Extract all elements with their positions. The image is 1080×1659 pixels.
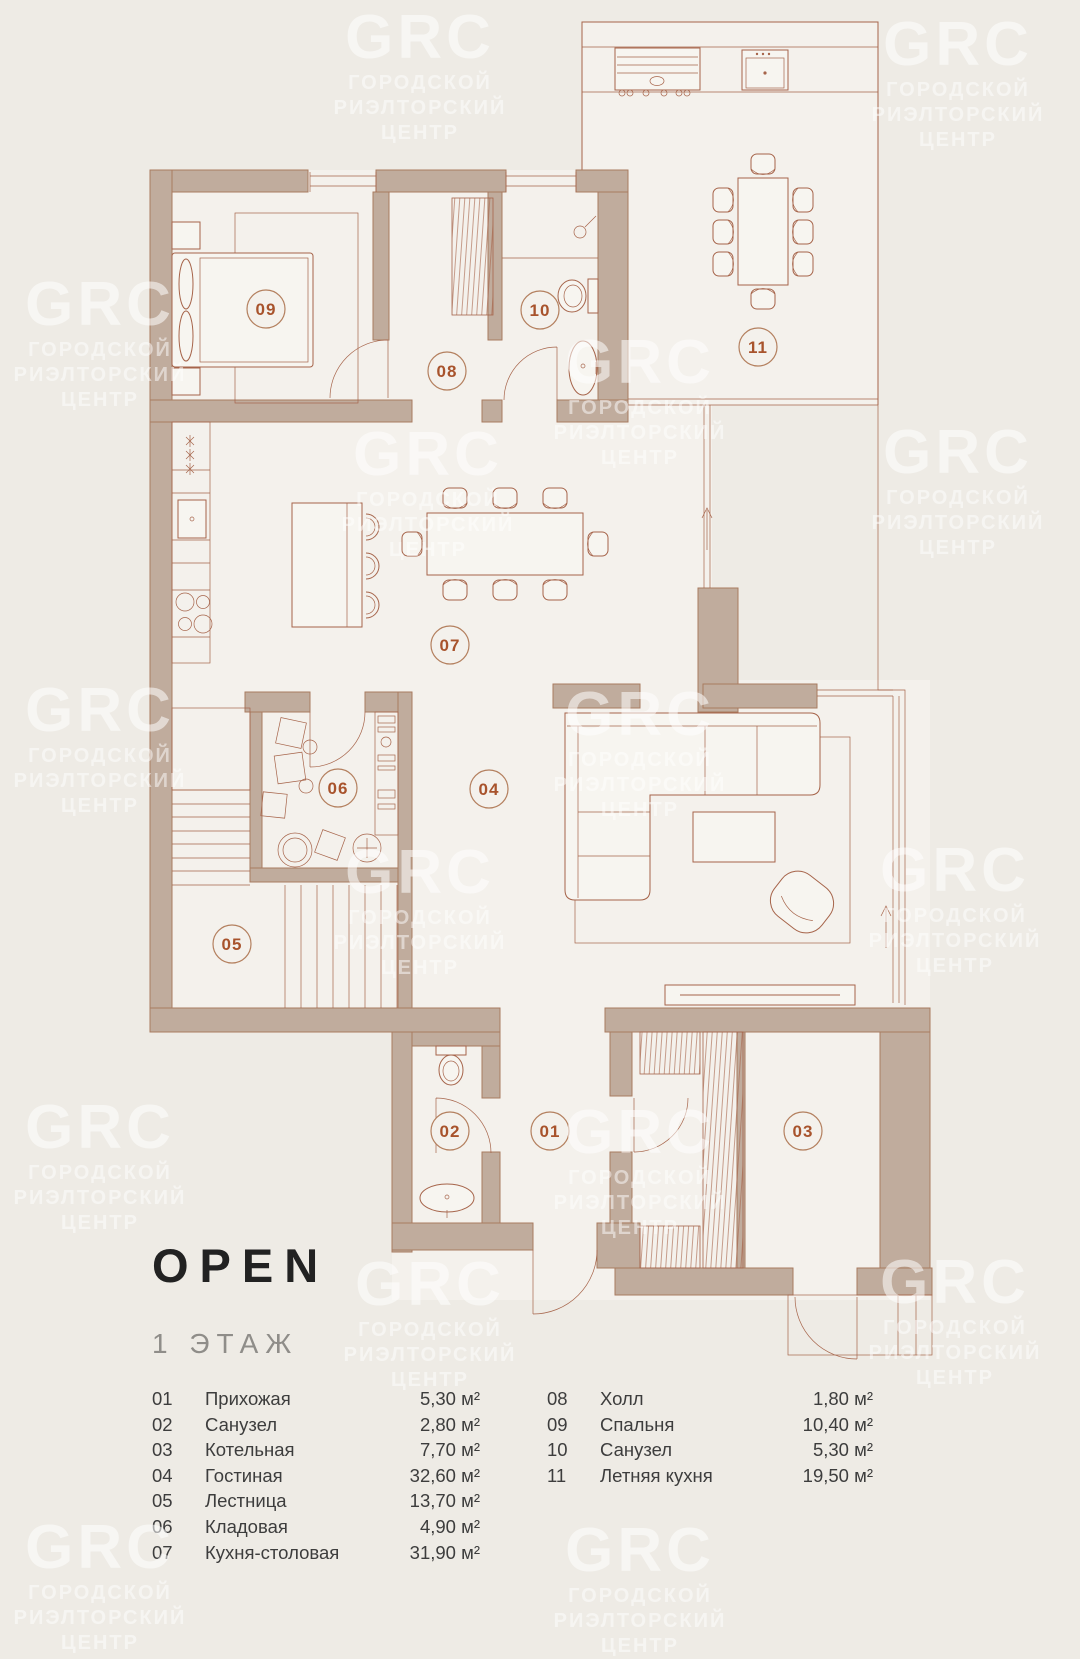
- grill-icon: [615, 48, 700, 96]
- kitchen-sink-icon: [178, 500, 206, 538]
- svg-text:03: 03: [793, 1122, 814, 1141]
- room-area: 19,50 м²: [803, 1465, 873, 1487]
- room-number: 04: [152, 1465, 205, 1487]
- svg-text:11: 11: [748, 338, 768, 357]
- legend-row: 04 Гостиная 32,60 м²: [152, 1465, 480, 1491]
- floor-plates: [150, 22, 930, 1300]
- room-name: Гостиная: [205, 1465, 410, 1487]
- room-number: 07: [152, 1542, 205, 1564]
- room-name: Санузел: [205, 1414, 420, 1436]
- room-area: 4,90 м²: [420, 1516, 480, 1538]
- room-number: 05: [152, 1490, 205, 1512]
- svg-text:04: 04: [479, 780, 500, 799]
- room-number: 02: [152, 1414, 205, 1436]
- room-area: 32,60 м²: [410, 1465, 480, 1487]
- room-label-02: 02: [431, 1112, 469, 1150]
- room-number: 10: [547, 1439, 600, 1461]
- room-name: Холл: [600, 1388, 813, 1410]
- watermark-line: ГОРОДСКОЙ: [525, 1584, 755, 1609]
- legend-row: 10 Санузел 5,30 м²: [547, 1439, 873, 1465]
- room-label-01: 01: [531, 1112, 569, 1150]
- floor-subtitle: 1 ЭТАЖ: [152, 1328, 298, 1360]
- svg-text:09: 09: [256, 300, 277, 319]
- toilet-icon: [558, 279, 598, 313]
- watermark-line: ГОРОДСКОЙ: [0, 1581, 215, 1606]
- watermark-line: ЦЕНТР: [0, 1631, 215, 1656]
- legend-row: 02 Санузел 2,80 м²: [152, 1414, 480, 1440]
- nightstand: [172, 368, 200, 395]
- room-name: Спальня: [600, 1414, 803, 1436]
- nightstand: [172, 222, 200, 249]
- legend-row: 05 Лестница 13,70 м²: [152, 1490, 480, 1516]
- outdoor-sink-icon: [742, 50, 788, 90]
- room-label-08: 08: [428, 352, 466, 390]
- room-number: 03: [152, 1439, 205, 1461]
- svg-text:08: 08: [437, 362, 458, 381]
- svg-text:10: 10: [530, 301, 551, 320]
- room-area: 1,80 м²: [813, 1388, 873, 1410]
- legend-row: 03 Котельная 7,70 м²: [152, 1439, 480, 1465]
- svg-text:07: 07: [440, 636, 461, 655]
- room-label-03: 03: [784, 1112, 822, 1150]
- wardrobe: [452, 198, 493, 315]
- room-number: 09: [547, 1414, 600, 1436]
- coffee-table: [693, 812, 775, 862]
- watermark-line: РИЭЛТОРСКИЙ: [0, 1606, 215, 1631]
- room-label-06: 06: [319, 769, 357, 807]
- room-name: Кухня-столовая: [205, 1542, 410, 1564]
- room-name: Летняя кухня: [600, 1465, 803, 1487]
- room-label-05: 05: [213, 925, 251, 963]
- room-name: Лестница: [205, 1490, 410, 1512]
- room-name: Санузел: [600, 1439, 813, 1461]
- legend-right: 08 Холл 1,80 м² 09 Спальня 10,40 м² 10 С…: [547, 1388, 873, 1490]
- room-number: 06: [152, 1516, 205, 1538]
- bed: [172, 253, 313, 367]
- room-label-09: 09: [247, 290, 285, 328]
- room-area: 7,70 м²: [420, 1439, 480, 1461]
- legend-row: 07 Кухня-столовая 31,90 м²: [152, 1542, 480, 1568]
- legend-row: 11 Летняя кухня 19,50 м²: [547, 1465, 873, 1491]
- tv-console: [665, 985, 855, 1005]
- room-label-10: 10: [521, 291, 559, 329]
- svg-text:01: 01: [540, 1122, 561, 1141]
- legend-row: 09 Спальня 10,40 м²: [547, 1414, 873, 1440]
- svg-text:02: 02: [440, 1122, 461, 1141]
- watermark-line: РИЭЛТОРСКИЙ: [525, 1609, 755, 1634]
- legend-row: 06 Кладовая 4,90 м²: [152, 1516, 480, 1542]
- room-area: 5,30 м²: [420, 1388, 480, 1410]
- room-floor-05-06: [150, 692, 412, 1032]
- legend-left: 01 Прихожая 5,30 м² 02 Санузел 2,80 м² 0…: [152, 1388, 480, 1567]
- page-title: OPEN: [152, 1238, 329, 1293]
- room-name: Прихожая: [205, 1388, 420, 1410]
- room-name: Котельная: [205, 1439, 420, 1461]
- room-number: 11: [547, 1465, 600, 1487]
- room-number: 08: [547, 1388, 600, 1410]
- room-number: 01: [152, 1388, 205, 1410]
- legend-row: 01 Прихожая 5,30 м²: [152, 1388, 480, 1414]
- legend-row: 08 Холл 1,80 м²: [547, 1388, 873, 1414]
- room-area: 2,80 м²: [420, 1414, 480, 1436]
- svg-text:05: 05: [222, 935, 243, 954]
- room-area: 13,70 м²: [410, 1490, 480, 1512]
- floor-plan-page: { "title": "OPEN", "floor": "1 ЭТАЖ", "w…: [0, 0, 1080, 1584]
- sink-icon: [569, 341, 597, 395]
- room-area: 31,90 м²: [410, 1542, 480, 1564]
- room-label-07: 07: [431, 626, 469, 664]
- door-boiler: [795, 1297, 857, 1359]
- porch-steps: [788, 1295, 932, 1355]
- watermark-line: ЦЕНТР: [525, 1634, 755, 1659]
- svg-text:06: 06: [328, 779, 349, 798]
- room-area: 5,30 м²: [813, 1439, 873, 1461]
- room-name: Кладовая: [205, 1516, 420, 1538]
- room-label-04: 04: [470, 770, 508, 808]
- room-area: 10,40 м²: [803, 1414, 873, 1436]
- room-label-11: 11: [739, 328, 777, 366]
